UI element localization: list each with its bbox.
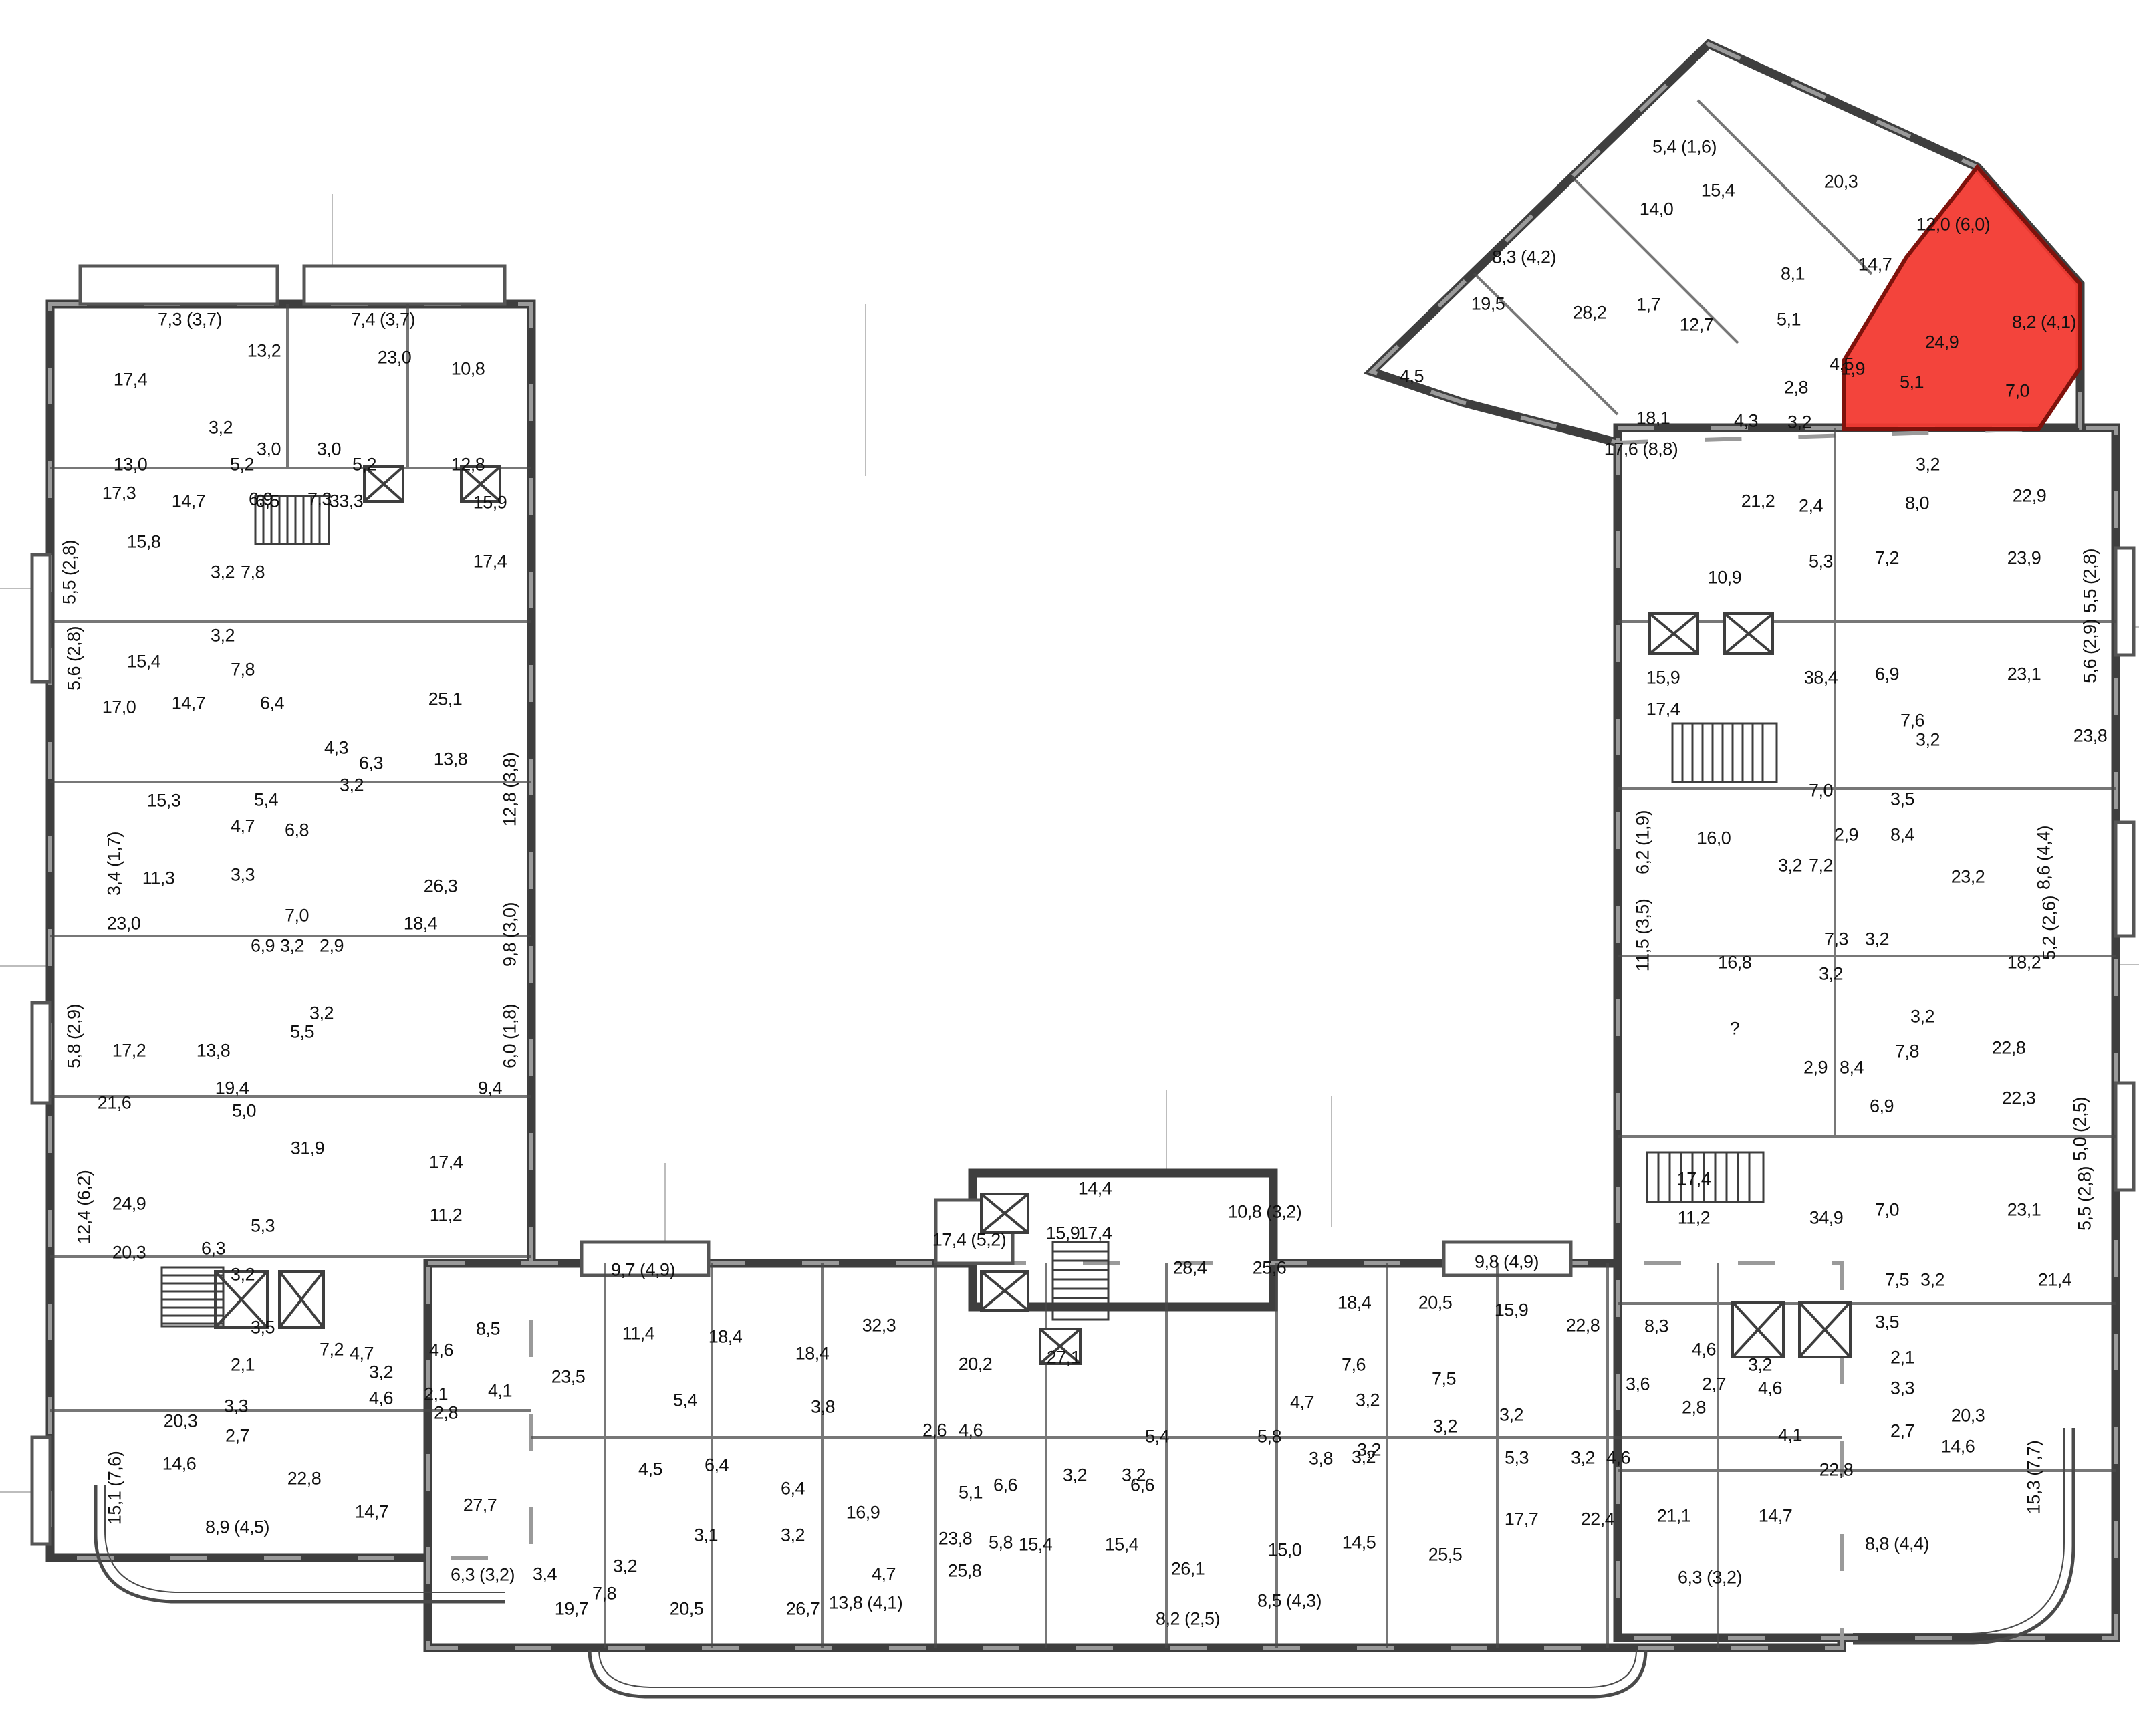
room-area-label: 5,1 [1777,311,1801,329]
room-area-label: 11,5 (3,5) [1634,899,1652,972]
room-area-label: 34,9 [1809,1209,1844,1227]
room-area-label: 23,0 [378,349,412,367]
room-area-label: 7,6 [1900,712,1924,730]
room-area-label: 5,3 [251,1217,275,1235]
room-area-label: 4,5 [1400,368,1424,386]
room-area-label: 6,3 [201,1240,225,1258]
room-area-label: 2,9 [1803,1059,1828,1077]
room-area-label: 11,2 [1678,1209,1711,1227]
room-area-label: 14,6 [1941,1438,1975,1456]
room-area-label: 6,9 [1870,1098,1894,1116]
room-area-label: 4,6 [1692,1341,1716,1359]
room-area-label: 26,7 [786,1600,820,1618]
room-area-label: 3,3 [231,866,255,884]
room-area-label: 5,6 (2,9) [2082,619,2100,683]
room-area-label: 23,1 [2007,1201,2041,1219]
room-area-label: 3,2 [211,564,235,582]
room-area-label: 22,3 [2002,1090,2036,1108]
room-area-label: 2,8 [1784,379,1808,397]
room-area-label: 9,7 (4,9) [611,1261,675,1279]
room-area-label: 3,2 [231,1266,255,1284]
room-area-label: 5,3 [1505,1449,1529,1467]
room-area-label: 7,8 [241,564,265,582]
room-area-label: 7,0 [2005,382,2029,400]
room-area-label: 7,3 [1824,931,1848,949]
room-area-label: 5,3 [1809,553,1833,571]
room-area-label: 15,9 [473,494,507,512]
room-area-label: 6,0 (1,8) [501,1004,519,1068]
room-area-label: 7,2 [1809,857,1833,875]
room-area-label: 15,0 [1268,1541,1302,1560]
room-area-label: 12,8 (3,8) [501,753,519,827]
room-area-label: 14,5 [1342,1534,1376,1552]
room-area-label: 5,4 [1145,1428,1169,1446]
room-area-label: 2,9 [320,937,344,955]
room-area-label: 8,3 (4,2) [1492,249,1556,267]
room-area-label: 3,2 [1357,1441,1381,1459]
room-area-label: 15,9 [1495,1301,1529,1320]
room-area-label: 14,7 [1759,1507,1793,1525]
room-area-label: 16,0 [1697,830,1731,848]
room-area-label: 25,8 [948,1562,982,1580]
room-area-label: 13,8 [197,1042,231,1060]
room-area-label: 15,3 [147,792,181,810]
room-area-label: 3,0 [317,441,341,459]
room-area-label: 22,9 [2013,487,2047,505]
room-area-label: 22,8 [1819,1461,1854,1479]
room-area-label: 5,0 (2,5) [2071,1097,2090,1161]
room-area-label: 2,1 [424,1386,448,1404]
room-area-label: 2,4 [1799,497,1823,515]
room-area-label: 17,4 [114,371,148,389]
room-area-label: 3,3 [1890,1380,1914,1398]
room-area-label: 5,5 (2,8) [2076,1166,2094,1231]
room-area-label: 3,8 [811,1398,835,1416]
room-area-label: 3,5 [251,1319,275,1337]
room-area-label: 4,7 [231,818,255,836]
room-area-label: 17,4 [1677,1170,1711,1189]
room-area-label: 22,8 [1566,1317,1600,1335]
room-area-label: 23,8 [938,1530,973,1548]
room-area-label: 3,2 [1063,1467,1087,1485]
room-area-label: 3,2 [1910,1008,1934,1026]
room-area-label: 11,2 [430,1207,463,1225]
room-area-label: 12,8 [451,456,485,474]
floor-plan-stage: 7,3 (3,7)7,4 (3,7)13,223,017,410,83,23,0… [0,0,2139,1736]
room-area-label: 3,2 [1920,1271,1944,1289]
room-area-label: 7,3 [307,491,332,509]
room-area-label: 7,0 [1809,782,1833,800]
room-area-label: 13,0 [114,456,148,474]
room-area-label: 2,7 [1890,1422,1914,1441]
room-area-label: 3,5 [1875,1314,1899,1332]
room-area-label: 13,8 [434,751,468,769]
room-area-label: 23,9 [2007,549,2041,568]
room-area-label: 4,6 [959,1422,983,1440]
room-area-label: 18,4 [404,915,438,933]
room-area-label: 8,2 (4,1) [2012,314,2076,332]
room-area-label: 19,5 [1471,295,1505,314]
room-area-label: 4,6 [1606,1449,1630,1467]
room-area-label: 2,1 [1890,1349,1914,1367]
room-area-label: 21,6 [98,1094,132,1112]
room-area-label: 4,3 [1734,412,1758,430]
room-area-label: 4,7 [872,1566,896,1584]
room-area-label: 3,4 [533,1566,557,1584]
room-area-label: 15,4 [1019,1536,1053,1554]
room-area-label: 1,7 [1636,296,1660,314]
room-area-label: 24,9 [112,1195,146,1213]
room-area-label: 8,4 [1890,826,1914,844]
room-area-label: 14,4 [1078,1180,1112,1198]
room-area-label: 14,6 [162,1455,197,1473]
room-area-label: 8,1 [1781,265,1805,283]
room-area-label: 18,2 [2007,954,2041,972]
room-area-label: 20,3 [112,1244,146,1262]
room-area-label: 12,0 (6,0) [1916,216,1991,234]
room-area-label: 15,4 [127,653,161,671]
room-area-label: 2,6 [922,1422,947,1440]
room-area-label: 3,2 [1865,931,1889,949]
room-area-label: 26,3 [424,878,458,896]
room-area-label: 5,8 [1257,1428,1281,1446]
room-area-label: 28,2 [1573,304,1607,322]
room-area-label: 3,2 [1916,456,1940,474]
room-area-label: 15,4 [1105,1536,1139,1554]
room-area-label: 3,2 [1778,857,1802,875]
room-area-label: 17,4 [1078,1225,1112,1243]
room-area-label: 4,7 [350,1345,374,1363]
room-area-label: 4,1 [1778,1427,1802,1445]
room-area-label: 9,8 (3,0) [501,902,519,967]
room-labels-layer: 7,3 (3,7)7,4 (3,7)13,223,017,410,83,23,0… [0,0,2139,1736]
room-area-label: 18,4 [1338,1294,1372,1312]
room-area-label: 10,8 (3,2) [1228,1203,1302,1221]
room-area-label: 23,0 [107,915,141,933]
room-area-label: 8,9 (4,5) [205,1519,269,1537]
room-area-label: 8,5 [476,1320,500,1338]
room-area-label: 3,2 [1433,1418,1457,1436]
room-area-label: 9,8 (4,9) [1475,1253,1539,1271]
room-area-label: 5,1 [1900,374,1924,392]
room-area-label: 4,3 [324,739,348,757]
room-area-label: 2,7 [1702,1376,1726,1394]
room-area-label: 32,3 [862,1317,896,1335]
room-area-label: 5,1 [959,1484,983,1502]
room-area-label: 11,3 [142,870,175,888]
room-area-label: 17,7 [1505,1511,1539,1529]
room-area-label: 9,4 [478,1080,502,1098]
room-area-label: 3,4 (1,7) [106,832,124,896]
room-area-label: 17,4 [473,553,507,571]
room-area-label: 16,9 [846,1504,880,1522]
room-area-label: 7,2 [1875,549,1899,568]
room-area-label: 5,2 (2,6) [2041,896,2059,960]
room-area-label: 26,1 [1171,1560,1205,1578]
room-area-label: 11,4 [622,1325,655,1343]
room-area-label: 3,2 [781,1527,805,1545]
room-area-label: 3,2 [1748,1356,1772,1374]
room-area-label: 15,9 [1646,669,1680,687]
room-area-label: 8,5 (4,3) [1257,1592,1322,1610]
room-area-label: 21,1 [1657,1507,1691,1525]
room-area-label: 7,5 [1885,1271,1909,1289]
room-area-label: 5,4 [673,1392,697,1410]
room-area-label: 3,2 [1122,1467,1146,1485]
room-area-label: 17,3 [102,485,136,503]
room-area-label: 23,5 [551,1368,586,1386]
room-area-label: 17,4 [1646,701,1680,719]
room-area-label: 6,3 (3,2) [451,1566,515,1584]
room-area-label: 4,6 [1758,1380,1782,1398]
room-area-label: 7,2 [320,1341,344,1359]
room-area-label: 20,5 [1418,1294,1453,1312]
room-area-label: 2,8 [1682,1399,1706,1417]
room-area-label: 6,9 [1875,666,1899,684]
room-area-label: 15,8 [127,533,161,551]
room-area-label: 17,4 (5,2) [932,1231,1007,1249]
room-area-label: 13,2 [247,342,281,360]
room-area-label: 4,6 [429,1342,453,1360]
room-area-label: 6,5 [255,493,279,511]
room-area-label: 17,6 (8,8) [1604,441,1678,459]
room-area-label: 27,7 [463,1497,497,1515]
room-area-label: 3,2 [1819,965,1843,983]
room-area-label: 7,4 (3,7) [351,311,415,329]
room-area-label: 7,3 (3,7) [158,311,222,329]
room-area-label: 3,8 [1309,1450,1333,1468]
room-area-label: 10,8 [451,360,485,378]
room-area-label: 7,8 [231,661,255,679]
room-area-label: 14,7 [172,493,206,511]
room-area-label: 8,0 [1905,495,1929,513]
room-area-label: 1,9 [1841,360,1865,378]
room-area-label: 3,2 [211,627,235,645]
room-area-label: 6,4 [260,695,284,713]
room-area-label: 6,9 [251,937,275,955]
room-area-label: 31,9 [291,1140,325,1158]
room-area-label: 3,2 [1787,414,1811,432]
room-area-label: 6,3 [359,755,383,773]
room-area-label: 38,4 [1804,669,1838,687]
room-area-label: 6,2 (1,9) [1634,810,1652,874]
room-area-label: 3,2 [209,419,233,437]
room-area-label: 20,3 [164,1412,198,1431]
room-area-label: 3,2 [1571,1449,1595,1467]
room-area-label: 24,9 [1925,334,1959,352]
room-area-label: 15,4 [1701,182,1735,200]
room-area-label: 25,6 [1253,1259,1287,1277]
room-area-label: 18,4 [795,1345,830,1363]
room-area-label: 12,4 (6,2) [76,1170,94,1245]
room-area-label: 3,5 [1890,791,1914,809]
room-area-label: 6,4 [705,1457,729,1475]
room-area-label: 5,6 (2,8) [66,626,84,691]
room-area-label: 28,4 [1173,1259,1207,1277]
room-area-label: 15,9 [1046,1225,1080,1243]
room-area-label: 8,8 (4,4) [1865,1535,1929,1554]
room-area-label: 3,6 [1626,1376,1650,1394]
room-area-label: 8,6 (4,4) [2035,826,2053,890]
room-area-label: 7,8 [592,1585,616,1603]
room-area-label: 23,2 [1951,868,1985,886]
room-area-label: 14,0 [1640,201,1674,219]
room-area-label: 8,2 (2,5) [1156,1610,1220,1628]
room-area-label: 3,2 [340,777,364,795]
room-area-label: 5,2 [230,456,254,474]
room-area-label: 2,8 [434,1404,458,1422]
room-area-label: 3,2 [1356,1392,1380,1410]
room-area-label: 8,4 [1840,1059,1864,1077]
room-area-label: 25,1 [428,691,463,709]
room-area-label: 2,7 [225,1427,249,1445]
room-area-label: 13,8 (4,1) [829,1594,903,1612]
room-area-label: 21,2 [1741,493,1775,511]
room-area-label: 6,4 [781,1480,805,1498]
room-area-label: 5,8 (2,9) [66,1004,84,1068]
room-area-label: 21,4 [2038,1271,2072,1289]
room-area-label: 20,3 [1824,173,1858,191]
room-area-label: 7,0 [1875,1201,1899,1219]
room-area-label: 6,6 [993,1477,1017,1495]
room-area-label: 7,6 [1342,1356,1366,1374]
room-area-label: 22,4 [1581,1511,1615,1529]
room-area-label: 5,8 [989,1534,1013,1552]
room-area-label: 6,8 [285,822,309,840]
room-area-label: 18,1 [1636,410,1670,428]
room-area-label: 19,7 [555,1600,589,1618]
room-area-label: 3,2 [1916,731,1940,749]
room-area-label: 7,0 [285,907,309,925]
room-area-label: 4,7 [1290,1394,1314,1412]
room-area-label: 8,3 [1644,1318,1668,1336]
room-area-label: 3,1 [694,1527,718,1545]
room-area-label: 7,5 [1432,1370,1456,1388]
room-area-label: 5,5 [290,1023,314,1041]
room-area-label: 33,3 [330,493,364,511]
room-area-label: 22,8 [1992,1039,2026,1058]
room-area-label: 18,4 [709,1328,743,1346]
room-area-label: 12,7 [1680,316,1714,334]
room-area-label: 4,1 [488,1382,512,1400]
room-area-label: 5,4 (1,6) [1652,138,1717,156]
room-area-label: 3,2 [613,1558,637,1576]
room-area-label: 5,4 [254,791,278,810]
room-area-label: ? [1730,1020,1740,1038]
room-area-label: 10,9 [1708,569,1742,587]
room-area-label: 3,0 [257,441,281,459]
room-area-label: 17,2 [112,1042,146,1060]
room-area-label: 16,8 [1718,954,1752,972]
room-area-label: 3,2 [309,1005,334,1023]
room-area-label: 14,7 [172,695,206,713]
room-area-label: 6,3 (3,2) [1678,1569,1742,1587]
room-area-label: 2,1 [231,1356,255,1374]
room-area-label: 5,0 [232,1102,256,1120]
room-area-label: 3,2 [1499,1406,1523,1424]
room-area-label: 17,0 [102,699,136,717]
room-area-label: 7,8 [1895,1043,1919,1061]
room-area-label: 23,1 [2007,666,2041,684]
room-area-label: 3,3 [224,1398,248,1416]
room-area-label: 3,2 [369,1364,393,1382]
room-area-label: 23,8 [2073,727,2108,745]
room-area-label: 20,2 [959,1356,993,1374]
room-area-label: 14,7 [1858,256,1892,274]
room-area-label: 4,5 [638,1461,662,1479]
room-area-label: 5,2 [352,456,376,474]
room-area-label: 20,3 [1951,1407,1985,1425]
room-area-label: 15,1 (7,6) [106,1451,124,1525]
room-area-label: 19,4 [215,1080,249,1098]
room-area-label: 20,5 [670,1600,704,1618]
room-area-label: 5,5 (2,8) [61,540,79,604]
room-area-label: 14,7 [355,1503,389,1521]
room-area-label: 15,3 (7,7) [2025,1441,2043,1515]
room-area-label: 22,8 [287,1470,322,1488]
room-area-label: 17,4 [429,1154,463,1172]
room-area-label: 4,6 [369,1390,393,1408]
room-area-label: 25,5 [1428,1546,1463,1564]
room-area-label: 2,9 [1834,826,1858,844]
room-area-label: 3,2 [280,937,304,955]
room-area-label: 5,5 (2,8) [2082,549,2100,613]
room-area-label: 27,1 [1047,1349,1081,1367]
